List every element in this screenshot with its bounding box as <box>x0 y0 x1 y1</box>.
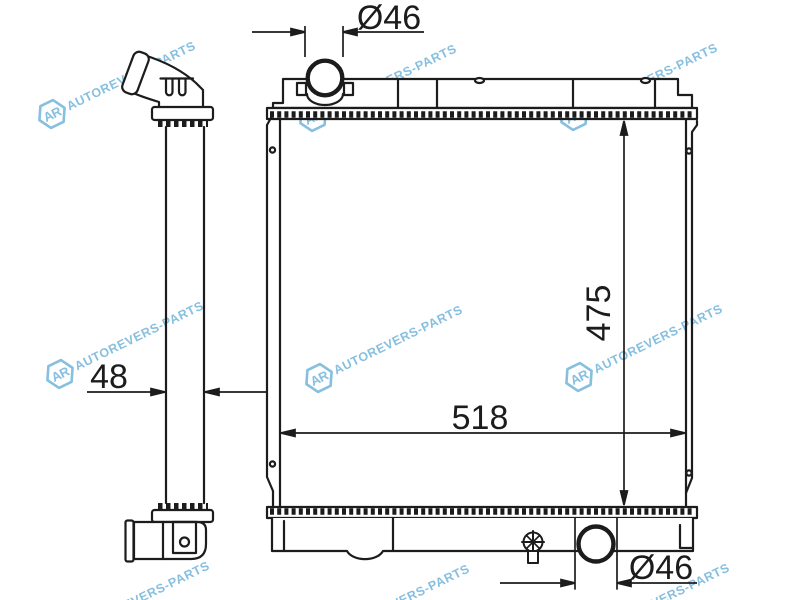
drawing-canvas: AR AUTOREVERS-PARTS <box>0 0 800 600</box>
dim-label-height: 475 <box>580 285 618 342</box>
drain-plug-icon <box>522 531 544 563</box>
front-view <box>267 61 697 589</box>
dim-core-thickness: 48 <box>87 358 268 396</box>
left-bracket <box>267 116 273 507</box>
right-bracket-hole <box>686 148 691 153</box>
inlet-pipe-opening <box>308 61 343 96</box>
side-top-flange <box>152 107 213 120</box>
dim-inlet-diameter: Ø46 <box>252 0 424 57</box>
dim-label-thickness: 48 <box>90 358 128 396</box>
side-bottom-flange <box>152 510 213 522</box>
front-top-tank-notch <box>641 78 650 83</box>
outlet-pipe-opening <box>579 527 614 562</box>
front-top-tank-notch <box>475 78 484 83</box>
dim-label-inlet-diameter: Ø46 <box>357 0 421 37</box>
dim-label-width: 518 <box>452 399 509 437</box>
side-outlet-pipe-end-cap <box>126 521 134 562</box>
left-bracket-hole <box>270 461 275 466</box>
left-bracket-hole <box>270 147 275 152</box>
inlet-mount-tab <box>297 83 306 95</box>
dim-core-height: 475 <box>580 121 627 505</box>
right-bracket <box>686 121 697 493</box>
dim-label-outlet-diameter: Ø46 <box>629 549 693 587</box>
right-bracket-hole <box>686 470 691 475</box>
inlet-mount-tab <box>344 83 353 95</box>
radiator-technical-drawing: AR AUTOREVERS-PARTS <box>0 0 800 600</box>
